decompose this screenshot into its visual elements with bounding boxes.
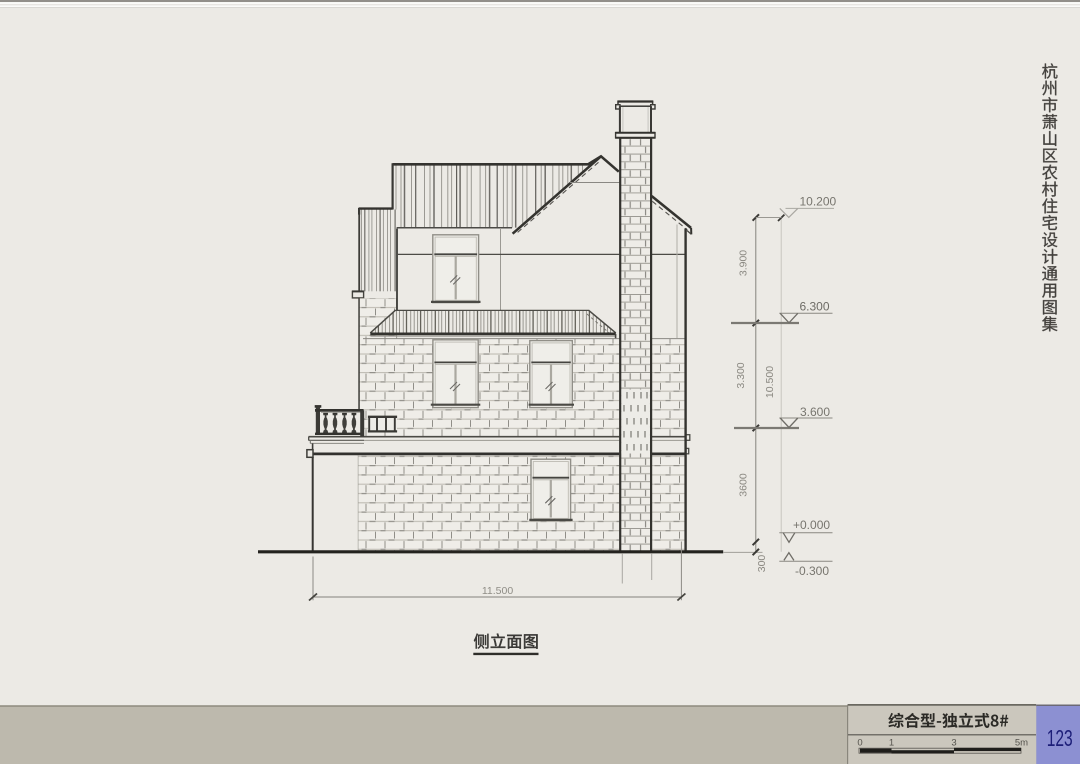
svg-text:6.300: 6.300 — [800, 300, 830, 314]
svg-text:11.500: 11.500 — [482, 585, 513, 597]
svg-text:10.200: 10.200 — [800, 195, 837, 209]
svg-text:0: 0 — [857, 738, 862, 749]
svg-text:+0.000: +0.000 — [793, 518, 830, 532]
svg-text:3600: 3600 — [737, 473, 749, 497]
svg-text:3: 3 — [951, 738, 956, 749]
svg-text:5m: 5m — [1015, 738, 1028, 749]
svg-text:123: 123 — [1047, 725, 1073, 751]
svg-text:1: 1 — [889, 738, 894, 749]
svg-text:3.300: 3.300 — [735, 362, 747, 388]
svg-text:3.600: 3.600 — [800, 405, 830, 419]
svg-text:-0.300: -0.300 — [795, 564, 829, 578]
svg-text:10.500: 10.500 — [764, 366, 776, 398]
svg-text:3.900: 3.900 — [737, 250, 749, 276]
svg-text:300: 300 — [756, 555, 768, 573]
